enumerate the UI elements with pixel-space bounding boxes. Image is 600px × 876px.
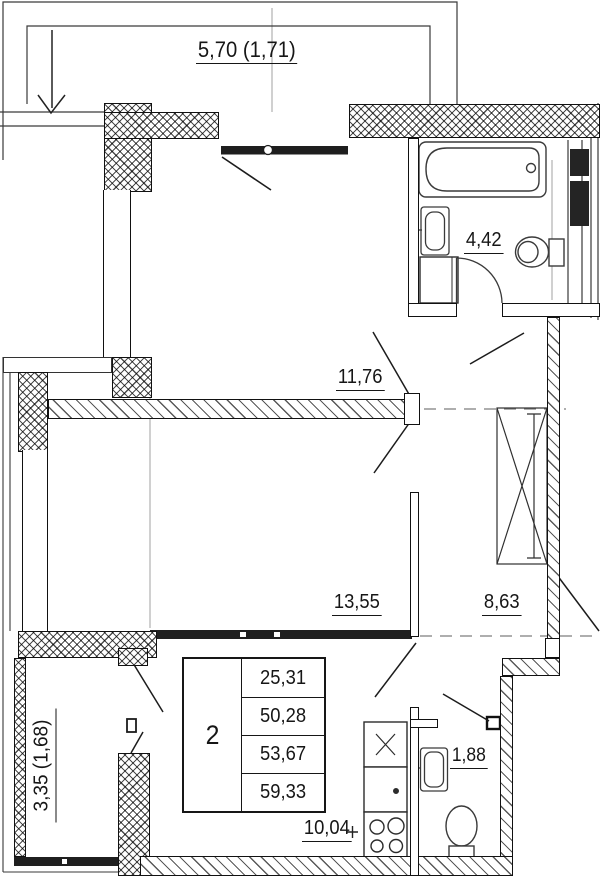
wall-interior-horizontal [48,399,406,419]
wc-sink [414,748,448,791]
wall-jog-a [112,357,152,398]
kitchen-washing-machine [364,722,407,767]
label-balcony-left: 3,35 (1,68) [32,709,57,823]
entry-arrow-icon [38,30,65,113]
wall-step-stub [545,638,560,658]
wall-top-b [349,104,600,138]
glazed-partition-band [150,630,412,639]
area-reduced-cell: 53,67 [242,735,324,773]
partition-bedroom-hall [410,492,419,637]
label-bathroom: 4,42 [464,230,504,254]
wall-bathroom-bottom-b [502,303,600,317]
wc-door-stub [487,717,500,729]
label-living-room: 11,76 [336,367,384,391]
bathtub [419,142,546,197]
wall-right-step [502,658,560,676]
label-wc: 1,88 [450,746,488,769]
ledge-left [3,357,112,373]
wall-end-cap [404,393,420,425]
label-bedroom: 13,55 [332,592,382,616]
toilet [516,237,565,267]
wall-right-hall [547,317,560,646]
area-living-cell: 25,31 [242,659,324,697]
balcony-left-door [127,663,163,753]
stove [364,812,407,858]
wall-bottom [140,856,513,876]
wall-left-lower [22,450,48,635]
opening-leader-lines [373,332,599,721]
partition-wc-stub [410,719,438,728]
area-summary-table: 2 25,31 50,28 53,67 59,33 [182,657,326,813]
wall-bathroom-bottom-a [408,303,457,317]
balcony-door-top [221,146,348,191]
wall-bathroom-left [408,138,419,305]
area-total-cell: 59,33 [242,773,324,811]
partition-kitchen-wc [410,707,419,876]
construction-guides [150,8,552,628]
label-kitchen: 10,04 [302,818,352,842]
washing-machine [420,257,458,303]
floor-plan: 5,70 (1,71) 11,76 4,42 13,55 8,63 1,88 1… [0,0,600,876]
wardrobe [497,408,547,564]
area-rooms-cell: 50,28 [242,697,324,735]
wall-right-lower [500,676,513,876]
wall-jog-b [18,372,48,452]
window-left-upper [103,190,131,358]
label-balcony-top: 5,70 (1,71) [196,38,298,64]
wall-step-balcony [118,648,148,666]
bathroom-door [457,258,503,303]
wall-top-a [104,112,219,139]
balcony-left-window-band [14,857,120,866]
balcony-left-glazing [14,658,26,857]
label-hallway: 8,63 [482,592,522,616]
kitchen-sink [364,767,407,812]
rooms-count-cell: 2 [184,659,242,811]
